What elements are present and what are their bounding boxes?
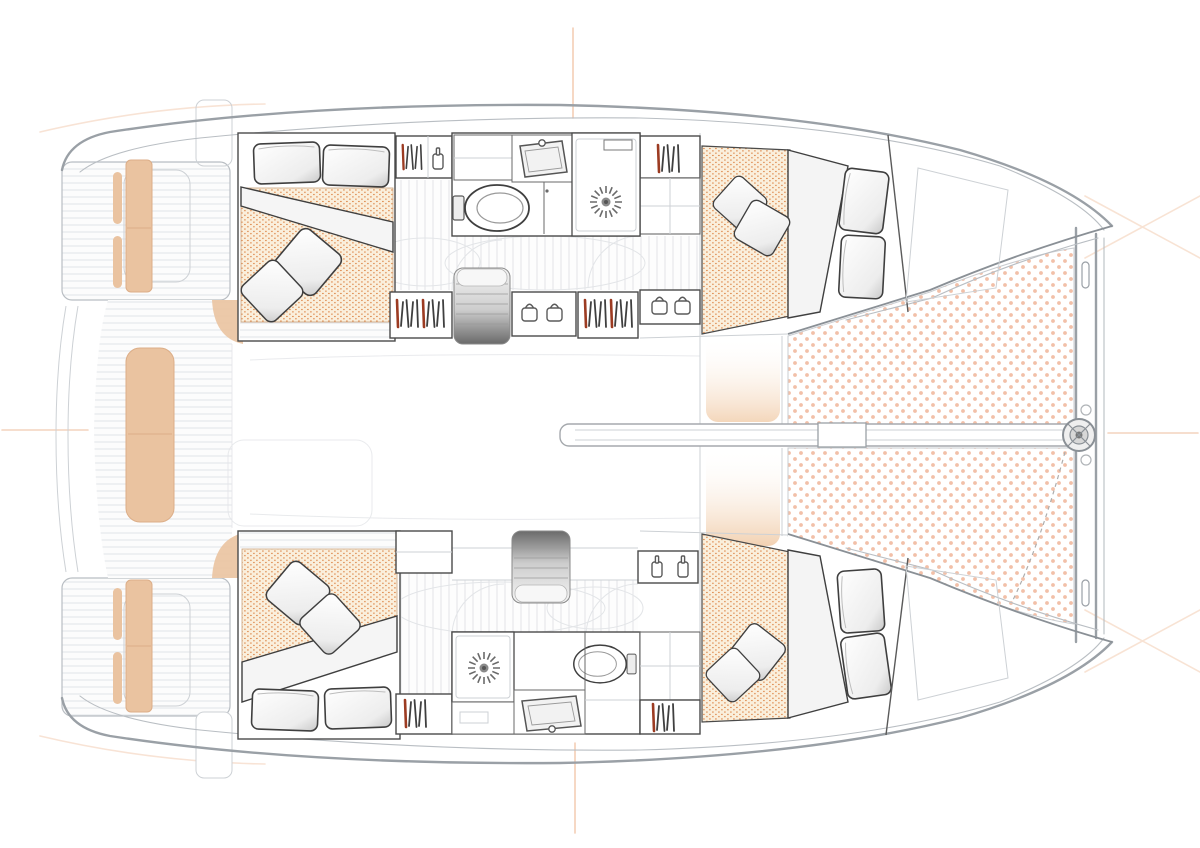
staircase-port	[454, 268, 510, 344]
pillow-icon	[251, 689, 318, 731]
stern-locker-port	[196, 100, 232, 166]
faucet-icon	[539, 140, 545, 146]
pillow-icon	[324, 687, 391, 729]
seat-pad	[113, 172, 122, 224]
locker-jars-port	[640, 290, 700, 324]
wardrobe-port-aft	[396, 136, 452, 178]
wardrobe-starboard-forward	[640, 700, 700, 734]
shower-shelf	[604, 140, 632, 150]
pillow-icon	[837, 569, 885, 634]
locker-bottles-port	[512, 292, 576, 336]
transom-step-curve	[68, 306, 78, 572]
stern-locker-starboard	[196, 712, 232, 778]
shower-drain-icon	[590, 186, 622, 218]
shelf-unit-starboard-forward	[640, 632, 700, 700]
faucet-icon	[549, 726, 555, 732]
pillow-icon	[840, 632, 892, 700]
bath-bench	[452, 702, 514, 734]
stair-landing	[457, 269, 507, 286]
seat-pad	[113, 236, 122, 288]
sink-icon	[512, 135, 572, 182]
forward-cockpit-seat-port	[706, 336, 780, 422]
anchor-fitting	[1063, 419, 1095, 451]
sink-icon	[514, 690, 585, 734]
beam-slot	[1082, 580, 1089, 606]
shower-starboard	[452, 632, 514, 702]
bed-head-shelf	[240, 532, 398, 549]
seat-pad	[113, 652, 122, 704]
bed-foot-shelf	[240, 322, 393, 339]
cabin-starboard-aft	[238, 531, 400, 739]
wardrobe-port-mid	[390, 292, 452, 338]
spar-collar	[818, 423, 866, 447]
bowsprit-spar	[560, 423, 1076, 447]
staircase-starboard	[512, 531, 570, 603]
shelf-unit-port-forward	[640, 178, 700, 234]
transom-step-curve	[56, 306, 66, 572]
wardrobe-port-forward	[640, 136, 700, 178]
beam-bolt	[1081, 455, 1091, 465]
beam-slot	[1082, 262, 1089, 288]
beam-bolt	[1081, 405, 1091, 415]
shower-port	[572, 133, 640, 236]
forward-cockpit-seat-starboard	[706, 448, 780, 546]
saloon-table	[228, 440, 372, 526]
wardrobe-starboard-aft	[396, 694, 452, 734]
head-port	[452, 133, 640, 236]
shower-drain-icon	[468, 652, 500, 684]
wardrobe-port-mid2	[578, 292, 638, 338]
seat-pad	[113, 588, 122, 640]
pillow-icon	[322, 145, 389, 187]
head-starboard	[452, 632, 640, 734]
stair-landing	[515, 585, 567, 602]
cockpit-bench-aft	[126, 348, 174, 522]
floorplan-canvas	[0, 0, 1200, 848]
locker-starboard-aft	[396, 531, 452, 573]
pillow-icon	[838, 168, 889, 235]
corridor-floor	[395, 236, 700, 290]
locker-bottles-starboard	[638, 551, 698, 583]
cabin-port-aft	[238, 133, 395, 341]
pillow-icon	[838, 235, 885, 299]
mattress-dot-area	[702, 534, 790, 722]
pillow-icon	[253, 142, 320, 184]
